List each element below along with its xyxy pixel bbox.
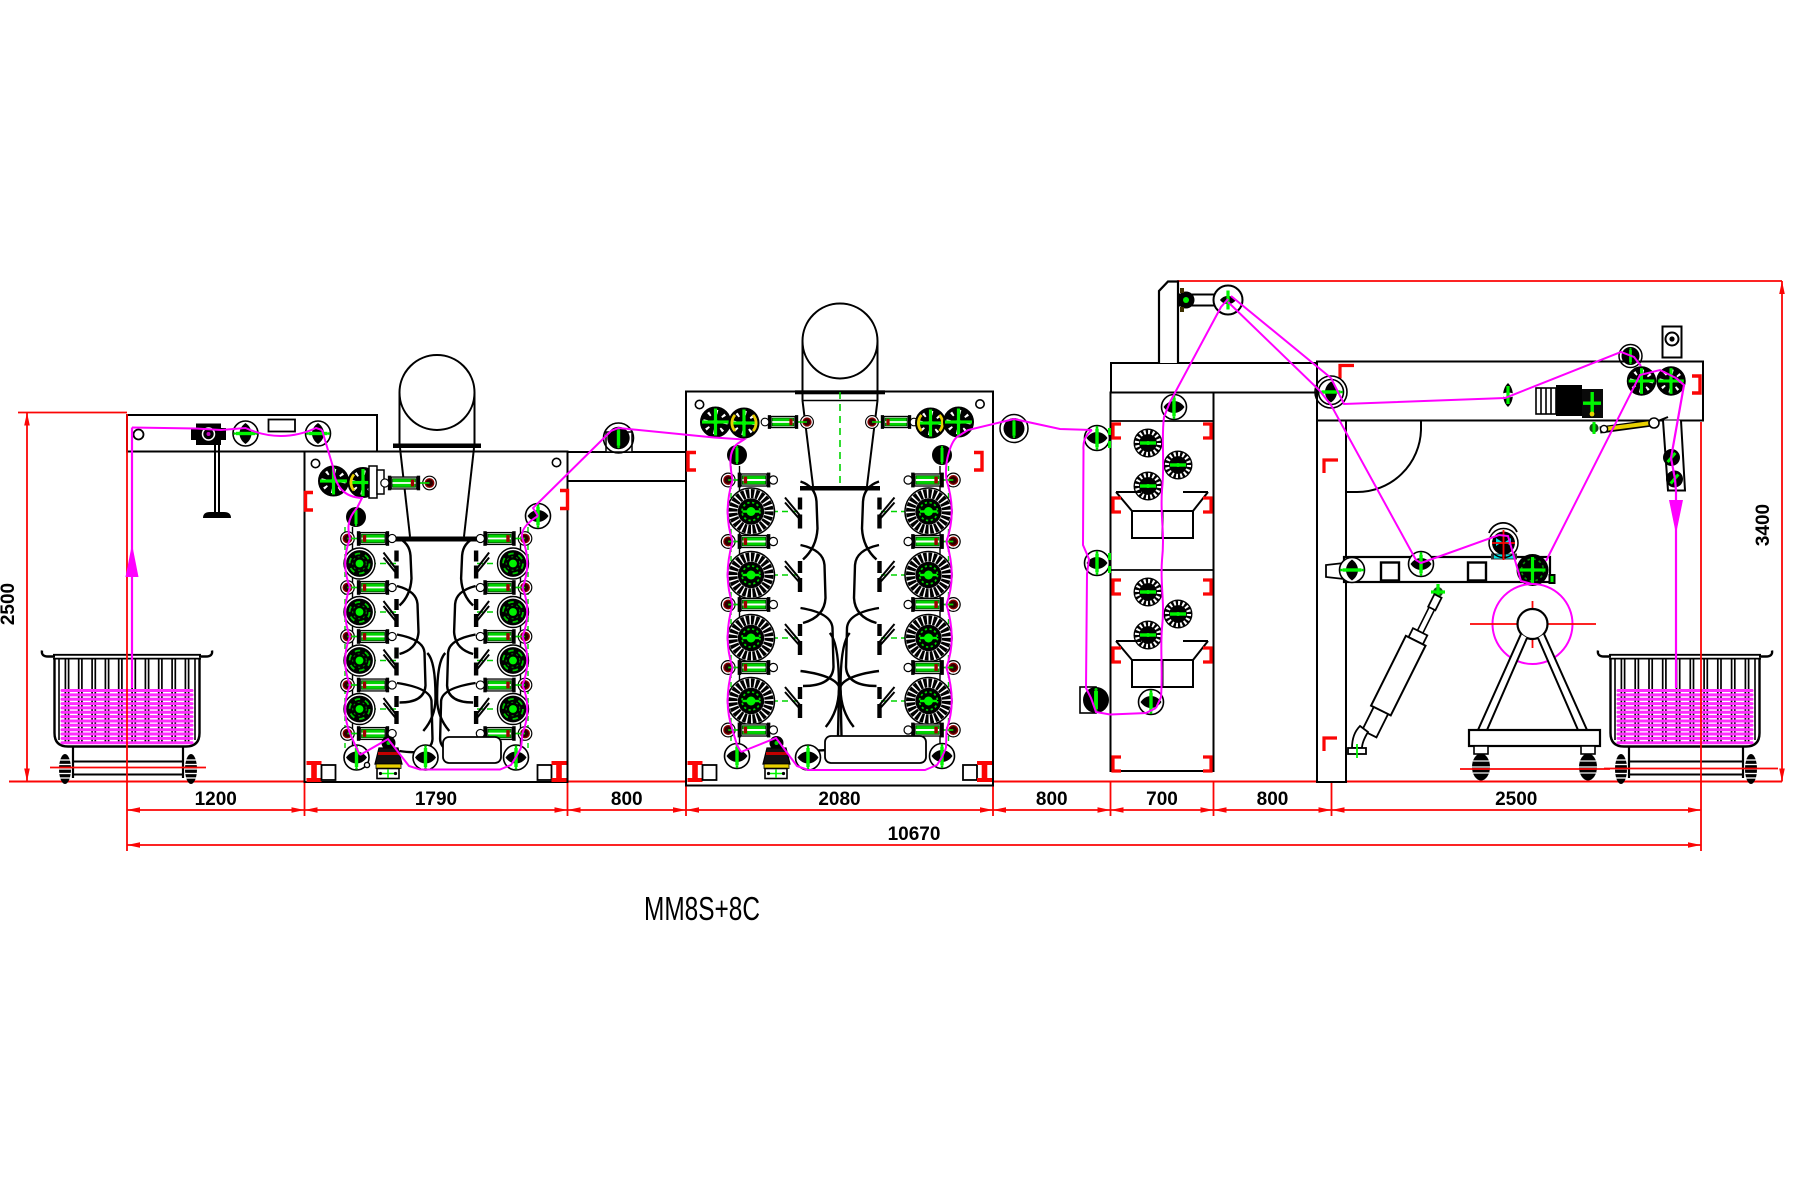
svg-text:700: 700 <box>1146 789 1178 810</box>
svg-text:1790: 1790 <box>415 789 457 810</box>
svg-text:2080: 2080 <box>818 789 860 810</box>
svg-text:MM8S+8C: MM8S+8C <box>644 890 760 927</box>
svg-text:800: 800 <box>611 789 643 810</box>
svg-text:3400: 3400 <box>1753 504 1774 546</box>
svg-text:10670: 10670 <box>888 824 941 845</box>
svg-text:2500: 2500 <box>0 583 19 625</box>
svg-text:800: 800 <box>1036 789 1068 810</box>
svg-text:1200: 1200 <box>195 789 237 810</box>
svg-text:800: 800 <box>1257 789 1289 810</box>
svg-text:2500: 2500 <box>1495 789 1537 810</box>
